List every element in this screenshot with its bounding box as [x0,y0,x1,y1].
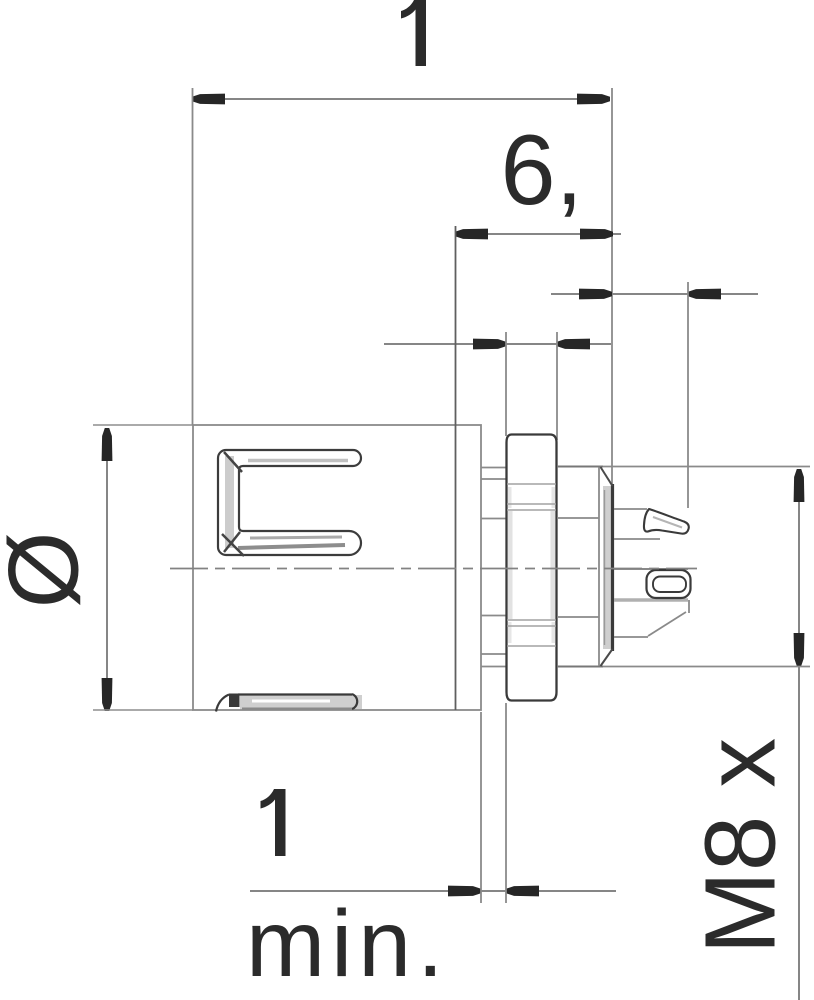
svg-text:min.: min. [246,891,449,997]
svg-text:Ø: Ø [0,531,99,608]
svg-text:M8 x: M8 x [685,738,797,955]
svg-text:6,: 6, [501,114,584,225]
